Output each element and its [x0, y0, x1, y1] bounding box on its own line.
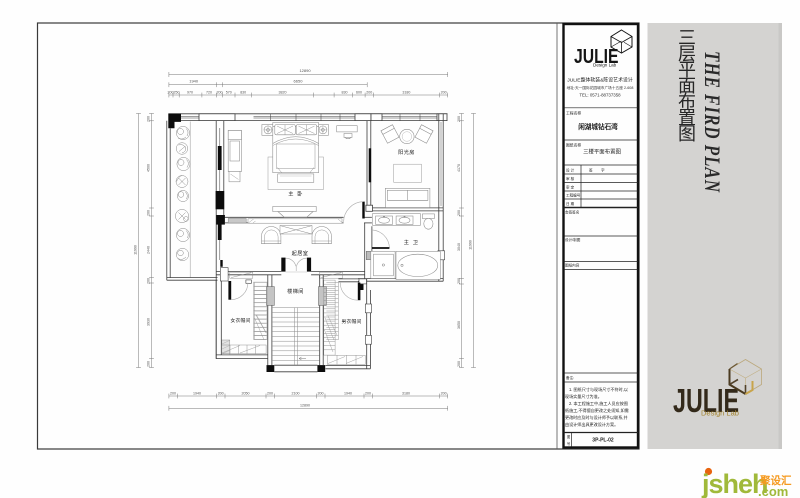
svg-text:TEL: 0571-88737358: TEL: 0571-88737358: [579, 93, 621, 98]
svg-text:600: 600: [356, 90, 362, 94]
svg-text:200: 200: [170, 391, 176, 395]
svg-text:200: 200: [147, 210, 151, 216]
svg-text:4500: 4500: [147, 164, 151, 172]
svg-text:200: 200: [147, 278, 151, 284]
svg-text:200: 200: [217, 90, 223, 94]
svg-text:970: 970: [187, 90, 193, 94]
svg-text:250: 250: [174, 90, 180, 94]
svg-text:1940: 1940: [344, 391, 352, 395]
svg-text:备注:: 备注:: [566, 375, 574, 380]
svg-text:号: 号: [567, 441, 570, 446]
svg-text:更改时应及时与设计师予以联系,并: 更改时应及时与设计师予以联系,并: [565, 414, 628, 420]
svg-text:200: 200: [457, 210, 461, 216]
svg-text:2. 本工程施工中,施工人员应按图: 2. 本工程施工中,施工人员应按图: [569, 400, 628, 406]
svg-text:审 定: 审 定: [566, 185, 575, 190]
svg-text:阳光房: 阳光房: [398, 148, 415, 156]
svg-text:12890: 12890: [299, 68, 311, 73]
svg-text:闲湖城钻石湾: 闲湖城钻石湾: [578, 122, 618, 131]
svg-text:签: 签: [589, 168, 593, 173]
svg-text:JULIE整体软装&陈设艺术设计: JULIE整体软装&陈设艺术设计: [567, 77, 633, 84]
svg-text:纸施工,不得擅自更改之处须知,如需: 纸施工,不得擅自更改之处须知,如需: [565, 407, 629, 413]
svg-text:200: 200: [147, 361, 151, 367]
svg-text:地址:天一国际花园城市广场十五座 2-608: 地址:天一国际花园城市广场十五座 2-608: [567, 85, 634, 90]
svg-text:THE FIRD PLAN: THE FIRD PLAN: [699, 51, 724, 193]
svg-text:图: 图: [678, 124, 696, 144]
svg-text:设 计: 设 计: [566, 168, 575, 173]
svg-text:楼梯间: 楼梯间: [287, 287, 304, 295]
svg-text:12890: 12890: [300, 403, 310, 407]
svg-text:起居室: 起居室: [292, 249, 309, 257]
svg-text:200: 200: [441, 391, 447, 395]
svg-text:日 期: 日 期: [566, 201, 575, 206]
svg-text:Design Lab: Design Lab: [593, 63, 617, 68]
svg-text:720: 720: [206, 90, 212, 94]
svg-text:男衣帽间: 男衣帽间: [342, 318, 362, 325]
svg-text:200: 200: [318, 391, 324, 395]
svg-text:3820: 3820: [279, 90, 287, 94]
svg-text:11990: 11990: [134, 245, 138, 255]
svg-text:3930: 3930: [147, 318, 151, 326]
svg-text:6650: 6650: [294, 78, 304, 83]
svg-text:3180: 3180: [402, 90, 410, 94]
svg-text:3180: 3180: [402, 391, 410, 395]
svg-text:由设计师出具更改设计方案。: 由设计师出具更改设计方案。: [565, 421, 618, 427]
svg-text:.com: .com: [758, 484, 788, 498]
svg-text:200: 200: [366, 90, 372, 94]
svg-text:图纸名称: 图纸名称: [566, 143, 581, 148]
svg-text:1940: 1940: [189, 78, 199, 83]
svg-text:Design Lab: Design Lab: [701, 409, 739, 418]
svg-text:11990: 11990: [469, 240, 473, 250]
svg-text:三楼平面布置图: 三楼平面布置图: [583, 148, 621, 156]
svg-text:2100: 2100: [292, 391, 300, 395]
svg-text:200: 200: [457, 116, 461, 122]
svg-text:设计/制图: 设计/制图: [565, 237, 581, 242]
svg-text:200: 200: [267, 391, 273, 395]
svg-text:主 卧: 主 卧: [288, 190, 303, 198]
svg-text:200: 200: [457, 361, 461, 367]
svg-text:工程名称: 工程名称: [566, 111, 581, 116]
svg-text:女衣帽间: 女衣帽间: [231, 317, 251, 324]
svg-text:2050: 2050: [242, 391, 250, 395]
svg-text:1940: 1940: [193, 391, 201, 395]
svg-text:现场实量尺寸为准。: 现场实量尺寸为准。: [565, 393, 602, 399]
svg-text:3P-PL-02: 3P-PL-02: [592, 438, 614, 444]
svg-text:200: 200: [365, 391, 371, 395]
svg-text:图: 图: [567, 435, 570, 439]
svg-text:图纸内容: 图纸内容: [565, 263, 580, 268]
svg-text:审 核: 审 核: [566, 176, 575, 181]
svg-text:1. 图纸尺寸与现场尺寸不符时,以: 1. 图纸尺寸与现场尺寸不符时,以: [569, 386, 628, 392]
svg-text:200: 200: [147, 116, 151, 122]
svg-text:3650: 3650: [457, 321, 461, 329]
svg-text:4170: 4170: [457, 164, 461, 172]
svg-text:200: 200: [218, 391, 224, 395]
svg-text:2440: 2440: [147, 246, 151, 254]
svg-text:3040: 3040: [457, 243, 461, 251]
svg-text:830: 830: [240, 90, 246, 94]
svg-text:工程编号: 工程编号: [566, 193, 581, 198]
svg-text:830: 830: [342, 90, 348, 94]
svg-text:会签签名: 会签签名: [565, 210, 580, 215]
svg-text:200: 200: [457, 278, 461, 284]
svg-text:200: 200: [441, 90, 447, 94]
svg-text:570: 570: [226, 90, 232, 94]
svg-text:字: 字: [601, 168, 605, 173]
svg-text:主 卫: 主 卫: [404, 238, 419, 246]
